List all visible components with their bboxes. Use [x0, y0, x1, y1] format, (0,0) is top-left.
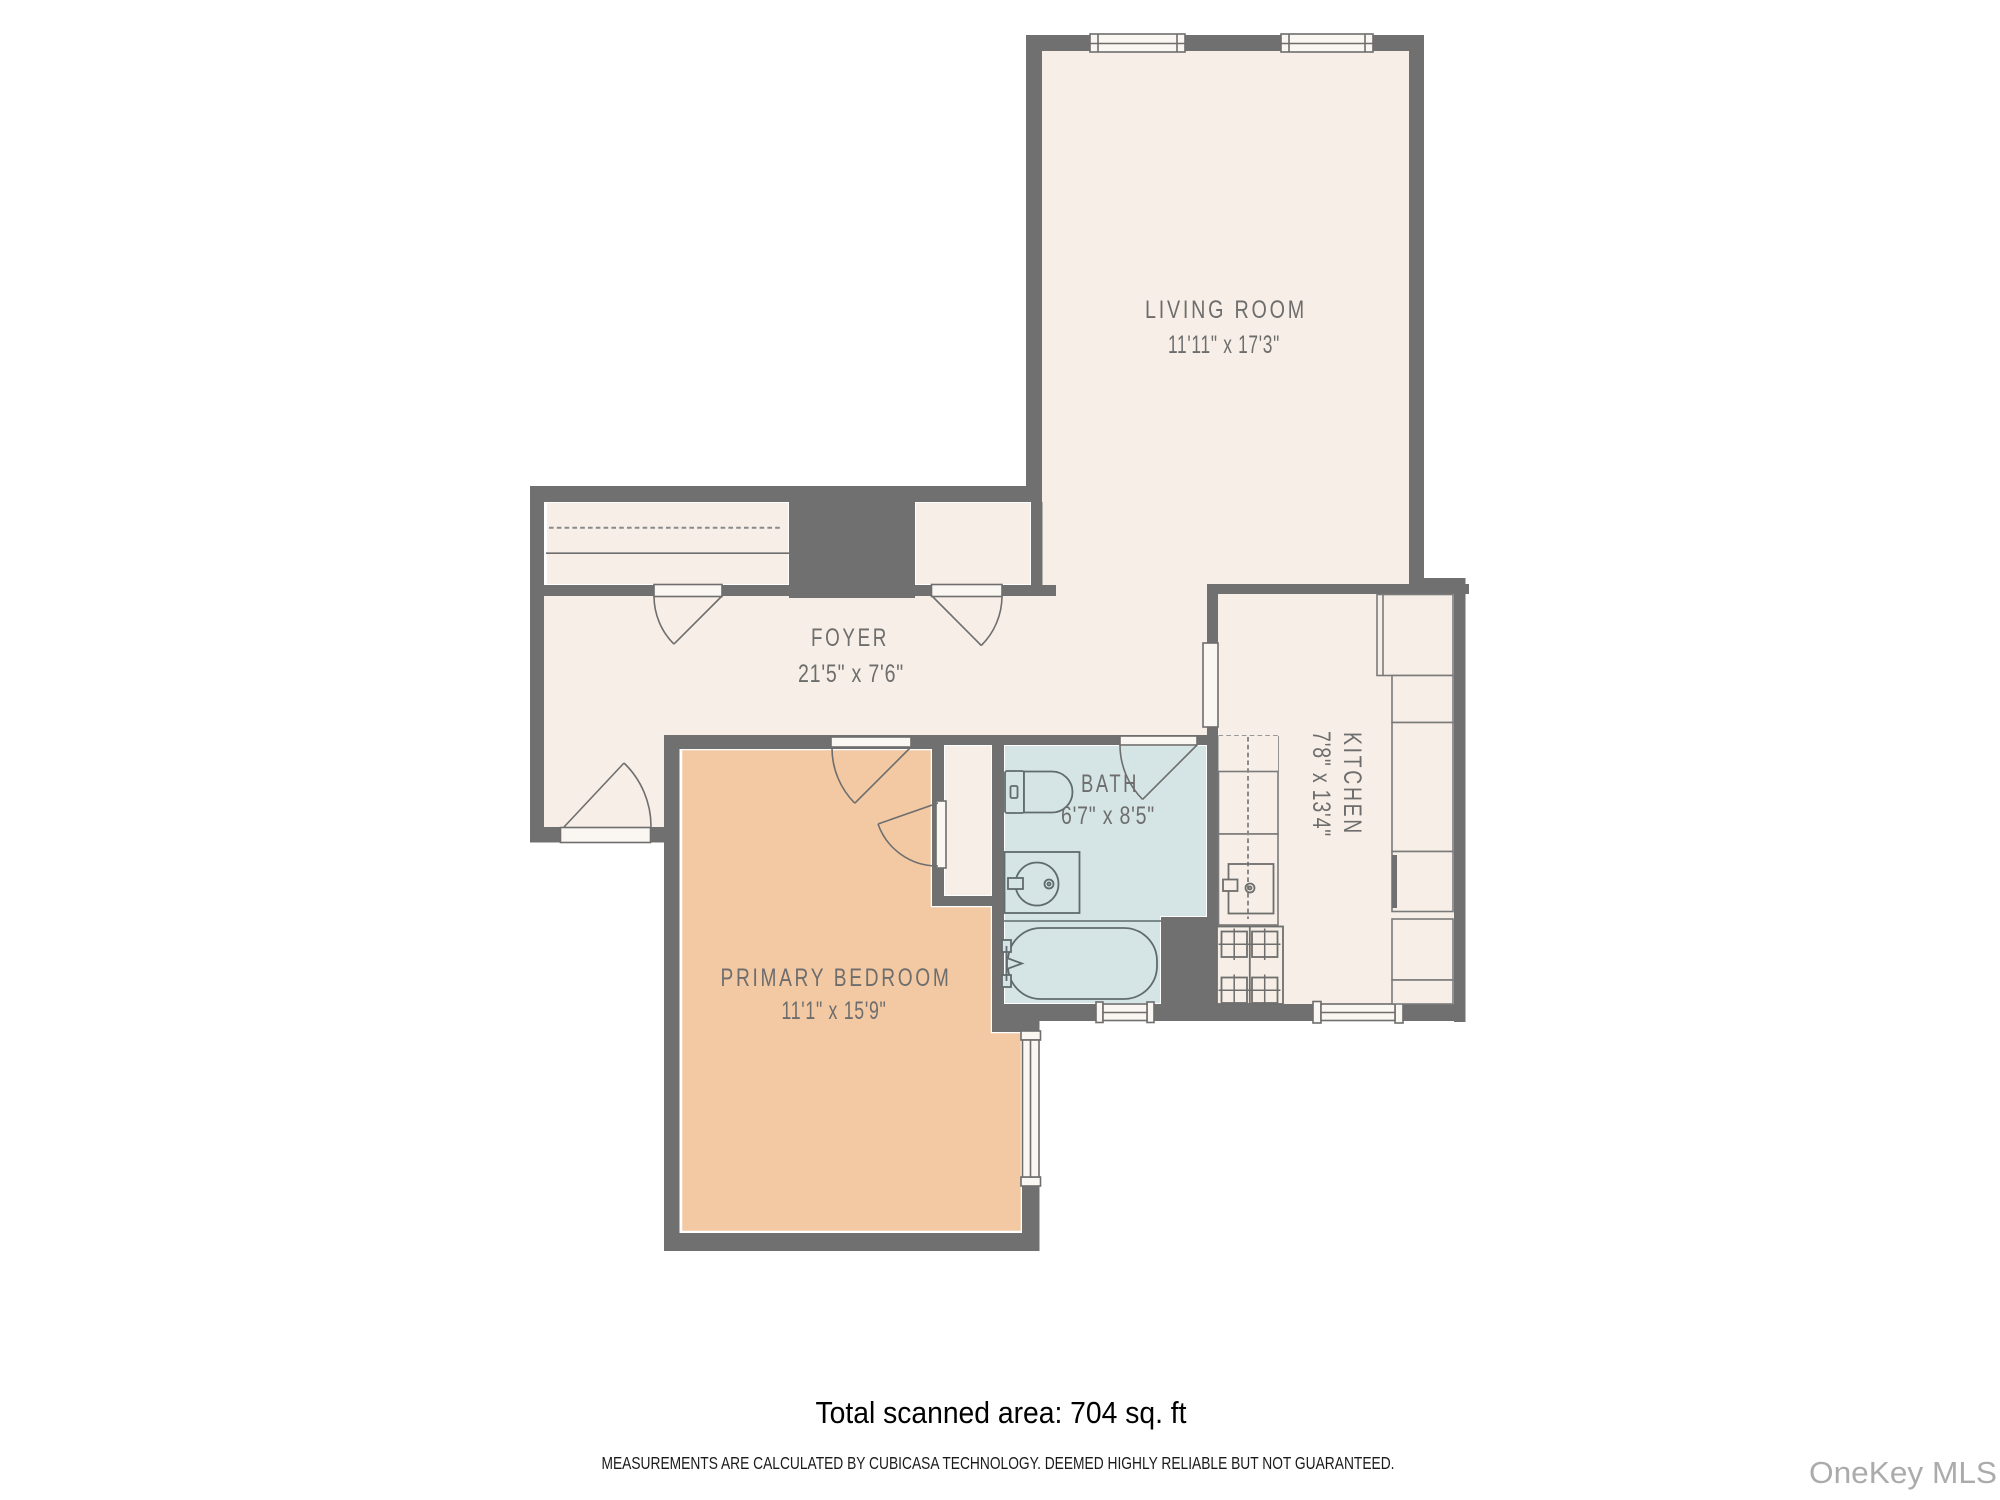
svg-text:PRIMARY BEDROOM: PRIMARY BEDROOM: [721, 964, 952, 992]
svg-text:11'11" x 17'3": 11'11" x 17'3": [1168, 331, 1280, 359]
svg-text:KITCHEN: KITCHEN: [1338, 732, 1366, 836]
svg-text:MEASUREMENTS ARE CALCULATED BY: MEASUREMENTS ARE CALCULATED BY CUBICASA …: [602, 1453, 1395, 1473]
svg-text:LIVING ROOM: LIVING ROOM: [1145, 296, 1307, 324]
svg-text:Total scanned area: 704 sq. ft: Total scanned area: 704 sq. ft: [816, 1395, 1187, 1430]
svg-text:FOYER: FOYER: [811, 624, 889, 652]
svg-text:7'8" x 13'4": 7'8" x 13'4": [1307, 731, 1335, 837]
svg-text:6'7" x 8'5": 6'7" x 8'5": [1061, 802, 1155, 830]
svg-text:BATH: BATH: [1081, 770, 1139, 798]
svg-text:OneKey MLS: OneKey MLS: [1809, 1456, 1997, 1490]
svg-text:21'5" x 7'6": 21'5" x 7'6": [798, 660, 904, 688]
svg-text:11'1" x 15'9": 11'1" x 15'9": [782, 997, 887, 1025]
